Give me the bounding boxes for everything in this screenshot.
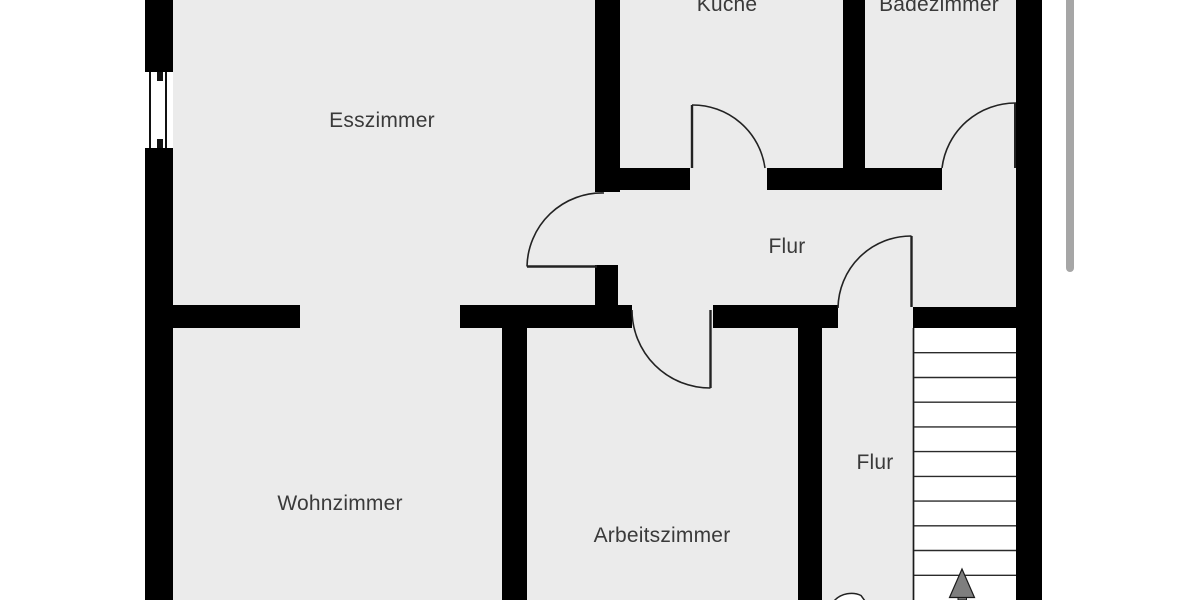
floorplan-viewport: Esszimmer Küche Badezimmer Flur Wohnzimm… bbox=[0, 0, 1200, 600]
wall-arbeitszimmer-flur bbox=[798, 328, 822, 600]
wall-exterior-right bbox=[1016, 0, 1042, 600]
wall-exterior-left-top bbox=[145, 0, 173, 72]
vertical-scrollbar-thumb[interactable] bbox=[1066, 0, 1074, 272]
window-sash-top bbox=[157, 72, 163, 81]
wall-esszimmer-kueche bbox=[595, 0, 620, 192]
wall-kueche-bottom-left bbox=[615, 168, 690, 190]
staircase bbox=[913, 328, 1016, 600]
room-label-flur-lower: Flur bbox=[857, 451, 894, 475]
room-label-wohnzimmer: Wohnzimmer bbox=[277, 492, 402, 516]
room-label-flur-upper: Flur bbox=[769, 235, 806, 259]
wall-mid-right bbox=[713, 305, 838, 328]
window-pane-inner bbox=[165, 72, 167, 148]
room-label-kueche: Küche bbox=[697, 0, 758, 17]
wall-esszimmer-flur-stub bbox=[595, 265, 618, 308]
window-pane-outer bbox=[149, 72, 151, 148]
room-label-badezimmer: Badezimmer bbox=[879, 0, 999, 17]
wall-stairs-top bbox=[913, 307, 1042, 328]
window-esszimmer bbox=[145, 72, 173, 148]
wall-kueche-badezimmer bbox=[843, 0, 865, 188]
room-label-esszimmer: Esszimmer bbox=[329, 109, 435, 133]
wall-mid-center bbox=[460, 305, 632, 328]
window-sash-bottom bbox=[157, 139, 163, 148]
room-label-arbeitszimmer: Arbeitszimmer bbox=[594, 524, 731, 548]
wall-wohnzimmer-arbeitszimmer bbox=[502, 328, 527, 600]
wall-exterior-left-bottom bbox=[145, 148, 173, 600]
wall-kueche-bad-bottom bbox=[767, 168, 942, 190]
wall-mid-left bbox=[173, 305, 300, 328]
